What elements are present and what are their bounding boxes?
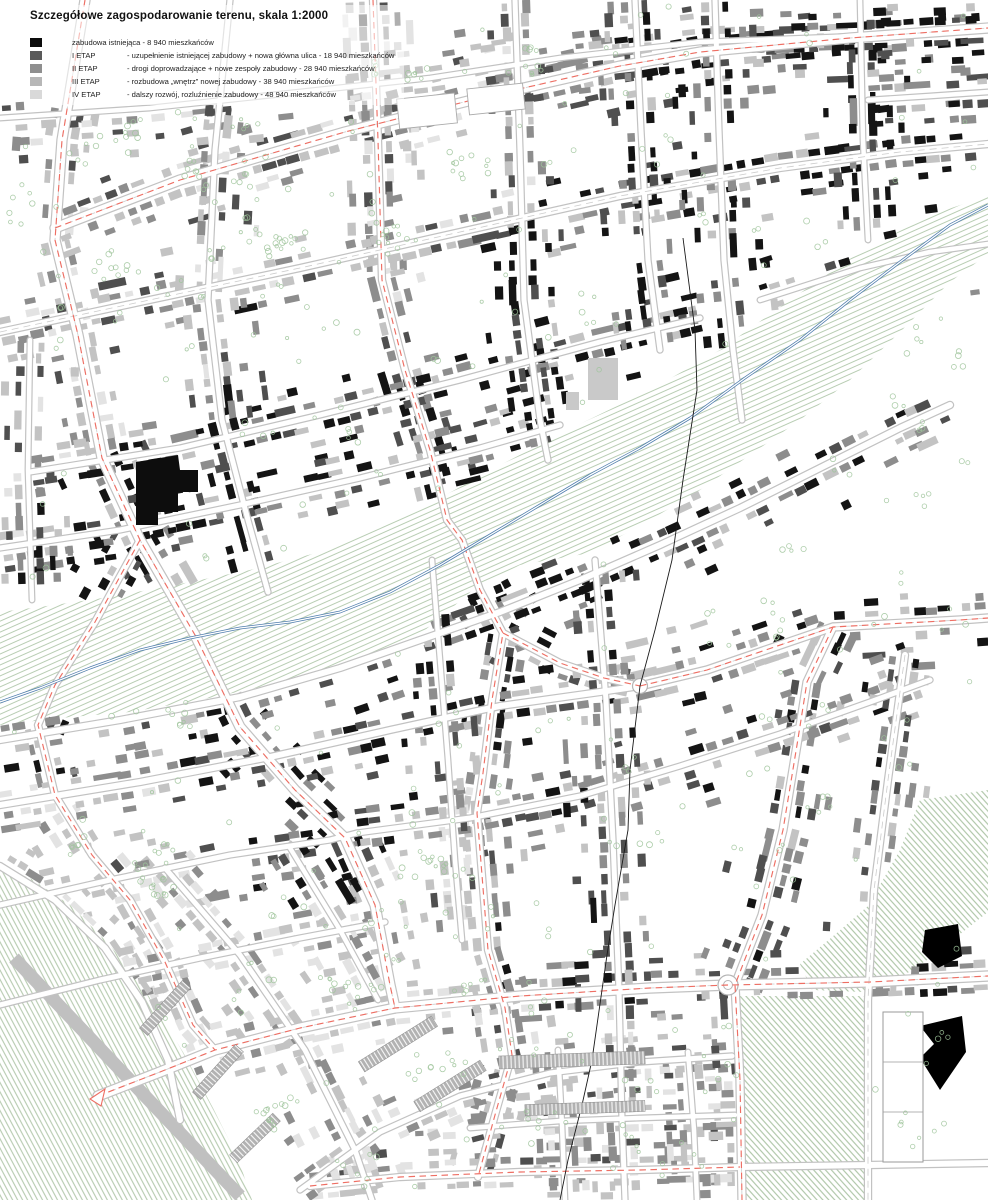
legend-row-etap1: I ETAP - uzupełnienie istniejącej zabudo… — [30, 49, 394, 62]
swatch-existing — [30, 38, 42, 47]
page-title: Szczegółowe zagospodarowanie terenu, ska… — [30, 10, 394, 22]
swatch-etap2 — [30, 64, 42, 73]
legend-row-existing: zabudowa istniejąca - 8 940 mieszkańców — [30, 36, 394, 49]
legend-label: II ETAP — [72, 64, 127, 73]
swatch-etap4 — [30, 90, 42, 99]
legend-desc: - rozbudowa „wnętrz” nowej zabudowy - 38… — [127, 77, 334, 86]
swatch-etap1 — [30, 51, 42, 60]
legend-row-etap2: II ETAP - drogi doprowadzające + nowe ze… — [30, 62, 394, 75]
city-plan-map — [0, 0, 988, 1200]
swatch-etap3 — [30, 77, 42, 86]
roundabouts — [633, 679, 739, 996]
legend-row-etap3: III ETAP - rozbudowa „wnętrz” nowej zabu… — [30, 75, 394, 88]
legend-label: IV ETAP — [72, 90, 127, 99]
legend-label: I ETAP — [72, 51, 127, 60]
legend: Szczegółowe zagospodarowanie terenu, ska… — [26, 5, 404, 105]
legend-desc: - dalszy rozwój, rozluźnienie zabudowy -… — [127, 90, 336, 99]
legend-desc: - uzupełnienie istniejącej zabudowy + no… — [127, 51, 394, 60]
plan-stage: Szczegółowe zagospodarowanie terenu, ska… — [0, 0, 988, 1200]
legend-row-etap4: IV ETAP - dalszy rozwój, rozluźnienie za… — [30, 88, 394, 101]
legend-label: III ETAP — [72, 77, 127, 86]
legend-desc: zabudowa istniejąca - 8 940 mieszkańców — [72, 38, 214, 47]
legend-desc: - drogi doprowadzające + nowe zespoły za… — [127, 64, 375, 73]
